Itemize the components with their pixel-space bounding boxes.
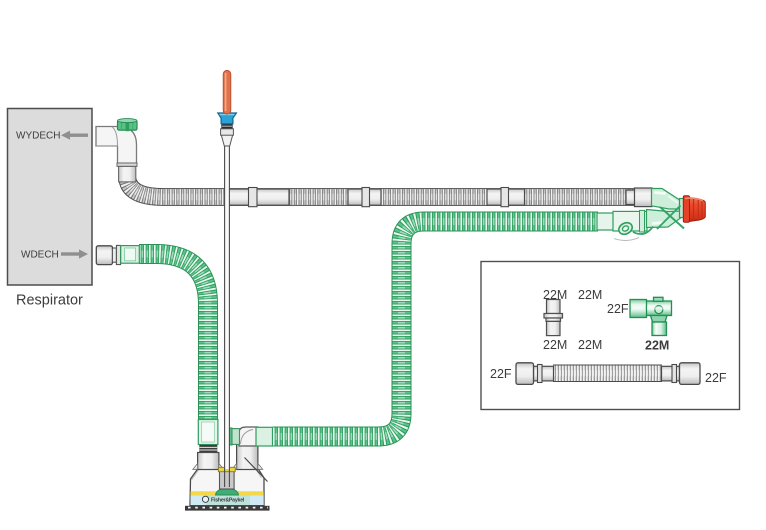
svg-text:22M: 22M xyxy=(578,288,602,302)
svg-text:WDECH: WDECH xyxy=(21,250,59,261)
svg-text:WYDECH: WYDECH xyxy=(16,131,60,142)
svg-text:22M: 22M xyxy=(645,339,669,353)
svg-text:22F: 22F xyxy=(607,302,629,316)
svg-text:22M: 22M xyxy=(543,338,567,352)
svg-text:22M: 22M xyxy=(578,338,602,352)
svg-text:Respirator: Respirator xyxy=(16,293,83,309)
svg-text:22F: 22F xyxy=(490,367,512,381)
svg-text:22F: 22F xyxy=(705,371,727,385)
svg-text:22M: 22M xyxy=(543,288,567,302)
svg-text:Fisher&Paykel: Fisher&Paykel xyxy=(211,498,245,504)
